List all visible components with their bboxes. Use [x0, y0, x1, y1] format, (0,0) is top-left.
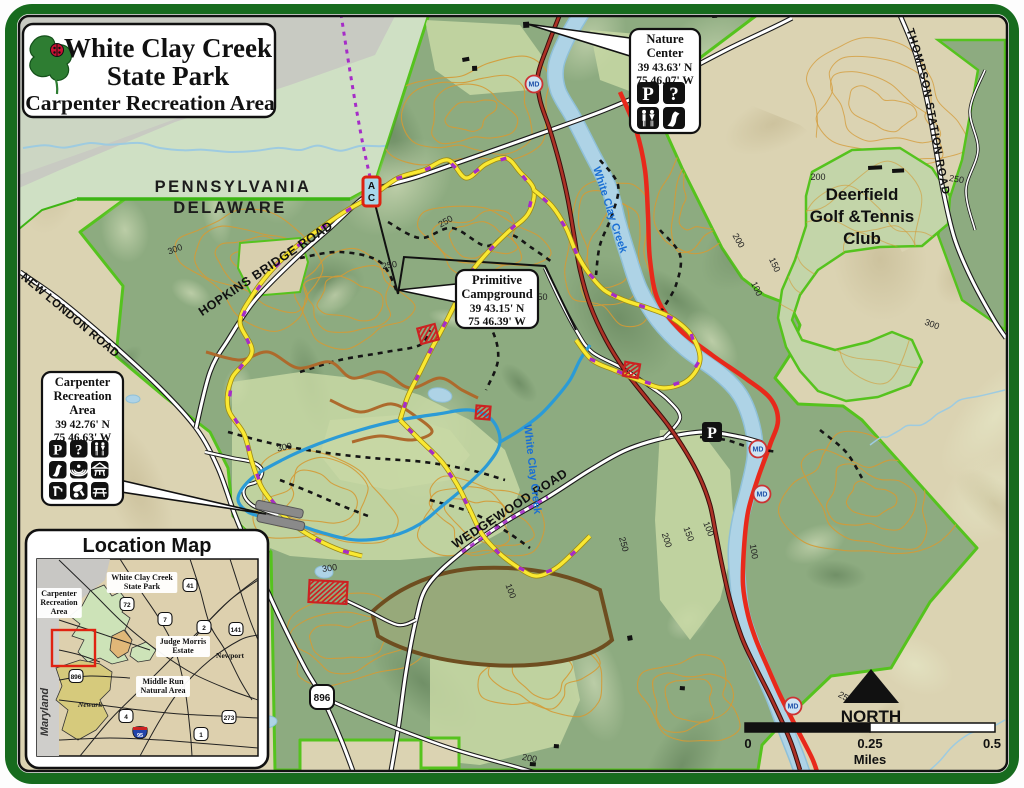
svg-text:300: 300: [321, 562, 337, 574]
svg-text:MD: MD: [788, 704, 799, 711]
svg-text:Deerfield: Deerfield: [826, 185, 899, 204]
svg-text:State Park: State Park: [107, 61, 229, 91]
svg-text:Area: Area: [51, 607, 68, 616]
svg-text:P: P: [707, 425, 717, 442]
svg-text:Miles: Miles: [854, 752, 887, 767]
svg-text:MD: MD: [753, 447, 764, 454]
svg-text:4: 4: [124, 714, 128, 721]
svg-text:Campground: Campground: [461, 287, 532, 301]
svg-text:P: P: [53, 442, 62, 458]
svg-text:PENNSYLVANIA: PENNSYLVANIA: [155, 178, 312, 196]
svg-text:896: 896: [314, 693, 331, 704]
svg-text:State Park: State Park: [124, 582, 161, 591]
svg-text:39 42.76' N: 39 42.76' N: [55, 419, 110, 431]
svg-text:7: 7: [163, 617, 167, 624]
svg-text:Area: Area: [69, 403, 96, 417]
svg-text:C: C: [368, 193, 375, 204]
svg-text:Maryland: Maryland: [39, 688, 51, 737]
svg-text:39 43.63' N: 39 43.63' N: [638, 62, 693, 74]
svg-text:0.5: 0.5: [983, 736, 1001, 751]
svg-text:MD: MD: [529, 82, 540, 89]
svg-text:Center: Center: [647, 46, 684, 60]
svg-text:95: 95: [137, 733, 143, 739]
svg-text:MD: MD: [757, 492, 768, 499]
svg-text:Club: Club: [843, 229, 881, 248]
svg-text:75 46.39' W: 75 46.39' W: [468, 316, 526, 328]
svg-text:?: ?: [75, 442, 83, 458]
svg-text:Judge Morris: Judge Morris: [160, 637, 206, 646]
svg-text:0: 0: [744, 736, 751, 751]
svg-text:Natural Area: Natural Area: [141, 686, 186, 695]
svg-text:2: 2: [202, 625, 206, 632]
svg-text:DELAWARE: DELAWARE: [173, 199, 287, 217]
svg-text:Carpenter: Carpenter: [55, 375, 111, 389]
svg-text:Recreation: Recreation: [40, 598, 78, 607]
svg-text:72: 72: [123, 602, 131, 609]
svg-text:A: A: [368, 181, 375, 192]
svg-text:Primitive: Primitive: [472, 273, 522, 287]
svg-text:896: 896: [71, 674, 82, 681]
svg-text:Recreation: Recreation: [53, 389, 111, 403]
svg-text:39 43.15' N: 39 43.15' N: [470, 303, 525, 315]
svg-text:Nature: Nature: [646, 32, 684, 46]
svg-text:Middle Run: Middle Run: [142, 677, 184, 686]
svg-text:1: 1: [199, 732, 203, 739]
svg-text:273: 273: [224, 715, 235, 722]
svg-text:White Clay Creek: White Clay Creek: [111, 573, 173, 582]
svg-text:Newport: Newport: [216, 651, 244, 660]
svg-text:200: 200: [810, 172, 825, 182]
svg-text:?: ?: [669, 84, 679, 105]
svg-text:Carpenter: Carpenter: [41, 589, 77, 598]
svg-text:Newark: Newark: [77, 700, 102, 709]
svg-text:Estate: Estate: [172, 646, 194, 655]
svg-text:White Clay Creek: White Clay Creek: [64, 33, 272, 63]
svg-text:Golf &Tennis: Golf &Tennis: [810, 207, 915, 226]
svg-text:Location Map: Location Map: [83, 535, 212, 557]
svg-text:141: 141: [231, 627, 242, 634]
svg-text:Carpenter Recreation Area: Carpenter Recreation Area: [25, 91, 275, 115]
svg-text:P: P: [642, 84, 654, 105]
svg-text:0.25: 0.25: [857, 736, 882, 751]
svg-text:41: 41: [186, 583, 194, 590]
